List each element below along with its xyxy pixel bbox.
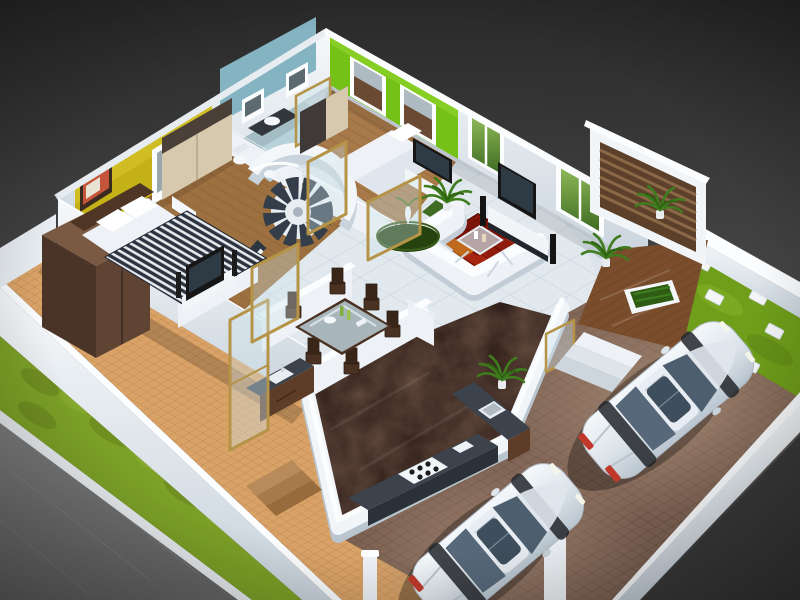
scene-canvas: 3D isometric floor plan render of a sing… [0, 0, 800, 600]
vignette [0, 0, 800, 600]
floor-plan-render: 3D isometric floor plan render of a sing… [0, 0, 800, 600]
